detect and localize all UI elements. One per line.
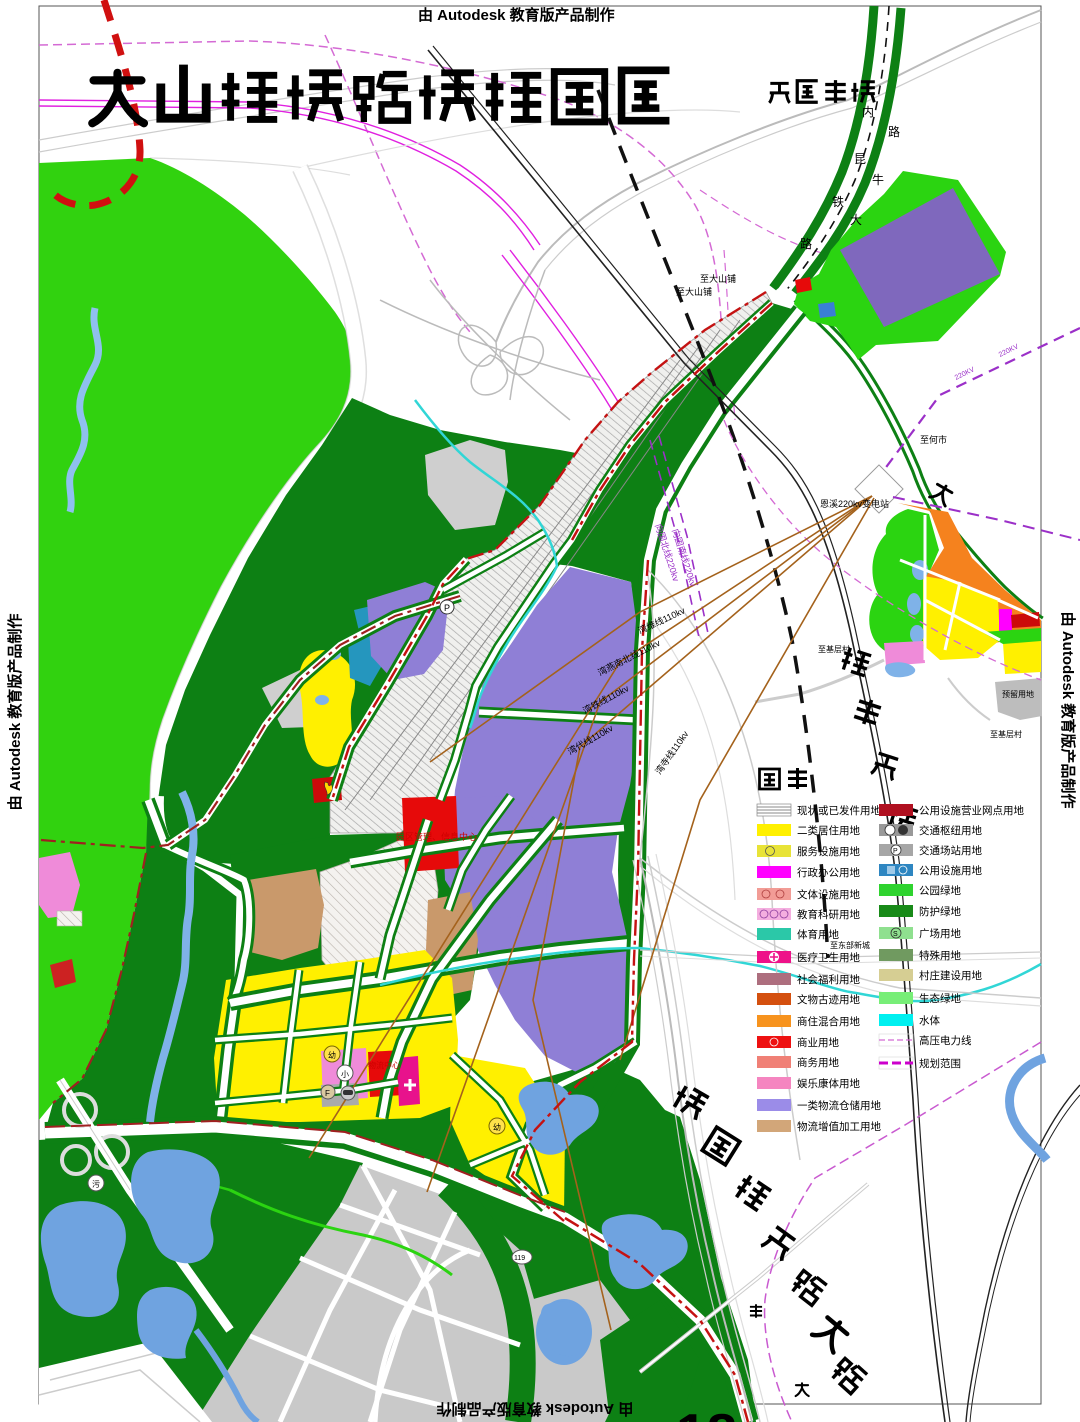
svg-text:大: 大 [850, 213, 862, 227]
svg-text:18: 18 [676, 1402, 737, 1422]
svg-text:物流增值加工用地: 物流增值加工用地 [797, 1120, 881, 1133]
svg-text:社会福利用地: 社会福利用地 [797, 973, 860, 986]
svg-text:路: 路 [888, 124, 900, 139]
svg-text:公园绿地: 公园绿地 [919, 884, 961, 897]
svg-text:商业用地: 商业用地 [797, 1036, 839, 1049]
svg-text:规划范围: 规划范围 [919, 1057, 961, 1070]
svg-text:交通枢纽用地: 交通枢纽用地 [919, 824, 982, 837]
svg-text:广场用地: 广场用地 [919, 927, 961, 940]
svg-text:F: F [325, 1089, 330, 1098]
svg-text:物流中心: 物流中心 [368, 1060, 400, 1070]
svg-text:恩溪220kv变电站: 恩溪220kv变电站 [820, 498, 889, 509]
svg-text:铁: 铁 [832, 195, 844, 209]
svg-text:由 Autodesk 教育版产品制作: 由 Autodesk 教育版产品制作 [6, 614, 24, 811]
svg-text:至大山铺: 至大山铺 [676, 286, 712, 297]
svg-text:防护绿地: 防护绿地 [919, 905, 961, 918]
svg-text:S: S [893, 931, 898, 938]
svg-text:生态绿地: 生态绿地 [919, 992, 961, 1005]
svg-text:一类物流仓储用地: 一类物流仓储用地 [797, 1099, 881, 1112]
svg-text:商住混合用地: 商住混合用地 [797, 1015, 860, 1028]
svg-text:由 Autodesk 教育版产品制作: 由 Autodesk 教育版产品制作 [418, 6, 615, 24]
svg-text:村庄建设用地: 村庄建设用地 [919, 969, 982, 982]
svg-text:由 Autodesk 教育版产品制作: 由 Autodesk 教育版产品制作 [1059, 612, 1077, 809]
svg-text:幼: 幼 [493, 1122, 501, 1132]
svg-text:至基层村: 至基层村 [990, 729, 1022, 739]
svg-text:昆: 昆 [854, 152, 866, 166]
svg-text:牛: 牛 [872, 172, 884, 187]
svg-text:119: 119 [514, 1255, 525, 1262]
svg-text:至大山铺: 至大山铺 [700, 273, 736, 284]
svg-text:娱乐康体用地: 娱乐康体用地 [797, 1077, 860, 1090]
svg-text:内: 内 [862, 105, 874, 119]
svg-text:文体设施用地: 文体设施用地 [797, 888, 860, 901]
svg-text:至基层村: 至基层村 [818, 644, 850, 654]
svg-text:路: 路 [800, 236, 812, 251]
svg-text:教育科研用地: 教育科研用地 [797, 908, 860, 921]
svg-text:水体: 水体 [919, 1015, 940, 1027]
svg-text:小: 小 [341, 1070, 349, 1079]
svg-text:特殊用地: 特殊用地 [919, 949, 961, 962]
svg-text:P: P [444, 603, 450, 613]
svg-text:商务用地: 商务用地 [797, 1056, 839, 1069]
svg-text:预留用地: 预留用地 [1002, 689, 1034, 699]
svg-text:污: 污 [92, 1179, 100, 1189]
svg-text:行政办公用地: 行政办公用地 [797, 866, 860, 879]
svg-text:至东部新城: 至东部新城 [830, 940, 870, 950]
svg-text:公用设施用地: 公用设施用地 [919, 864, 982, 877]
svg-text:高压电力线: 高压电力线 [919, 1034, 972, 1047]
svg-text:文物古迹用地: 文物古迹用地 [797, 993, 860, 1006]
svg-text:体育用地: 体育用地 [797, 928, 839, 941]
svg-text:医疗卫生用地: 医疗卫生用地 [797, 951, 860, 964]
svg-text:公用设施营业网点用地: 公用设施营业网点用地 [919, 804, 1024, 817]
svg-text:至何市: 至何市 [920, 434, 947, 445]
svg-text:园区管理、信息中心: 园区管理、信息中心 [396, 831, 477, 842]
svg-text:幼: 幼 [328, 1050, 336, 1060]
svg-text:现状或已发件用地: 现状或已发件用地 [797, 804, 881, 817]
svg-text:服务设施用地: 服务设施用地 [797, 845, 860, 858]
svg-text:交通场站用地: 交通场站用地 [919, 844, 982, 857]
svg-text:由 Autodesk 教育版产品制作: 由 Autodesk 教育版产品制作 [437, 1400, 634, 1418]
svg-text:P: P [893, 848, 898, 855]
svg-text:二类居住用地: 二类居住用地 [797, 824, 860, 837]
